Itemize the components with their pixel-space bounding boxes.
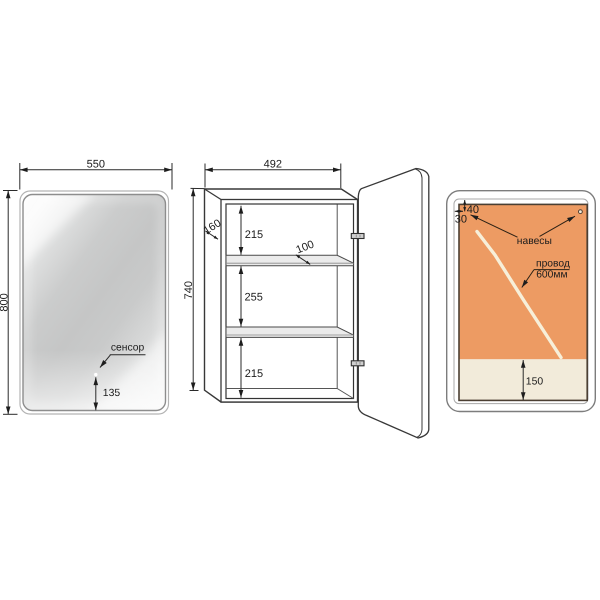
- svg-text:550: 550: [87, 158, 105, 170]
- svg-text:40: 40: [467, 204, 479, 216]
- svg-text:215: 215: [245, 229, 263, 241]
- svg-text:сенсор: сенсор: [111, 343, 145, 354]
- svg-text:провод: провод: [536, 258, 570, 269]
- svg-text:800: 800: [0, 293, 10, 311]
- svg-text:215: 215: [245, 368, 263, 380]
- svg-text:600мм: 600мм: [536, 270, 567, 281]
- svg-text:навесы: навесы: [517, 236, 552, 247]
- svg-text:255: 255: [245, 292, 263, 304]
- svg-text:740: 740: [183, 281, 195, 299]
- svg-text:135: 135: [103, 388, 121, 399]
- svg-text:150: 150: [526, 377, 544, 388]
- svg-text:492: 492: [264, 158, 282, 170]
- svg-text:30: 30: [455, 214, 467, 226]
